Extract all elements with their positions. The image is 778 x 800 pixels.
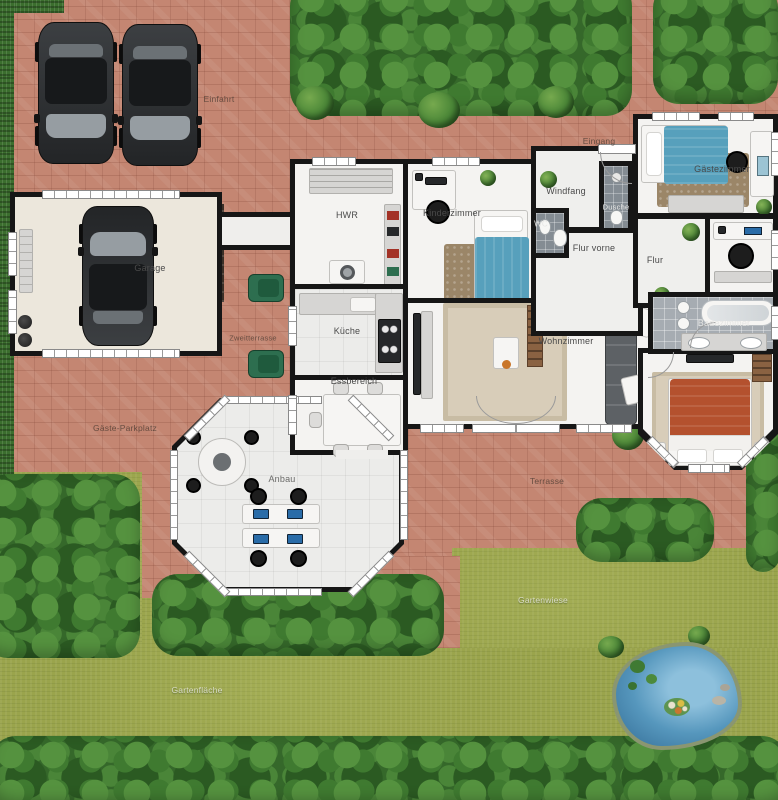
bed-pillow [481,216,523,232]
label-garage: Garage [134,263,165,273]
stored-box [387,249,399,258]
bush [538,86,574,118]
round-table [198,438,246,486]
window [8,290,17,334]
car-mirror [152,247,158,256]
tv-bench [421,311,433,399]
bed-pillow [677,449,707,463]
office-chair [290,550,307,567]
plant [682,223,700,241]
toilet [553,229,567,247]
armchair-seat [258,279,279,297]
kids-bed [474,210,528,302]
window [771,230,778,270]
garage-bin [18,315,32,329]
terrace-door [472,424,560,433]
window [400,450,408,540]
office-chair [290,488,307,505]
wardrobe [668,195,744,213]
car-mirror [34,114,40,123]
garage-bin [18,333,32,347]
lily-pad [630,660,645,673]
label-zweitterrasse: Zweitterrasse [229,334,277,343]
washing-machine [329,260,365,284]
hedge-top-right [653,0,778,104]
window [420,424,464,433]
bush [418,92,460,128]
label-hwr: HWR [336,210,358,220]
desk-phone [718,226,726,234]
window [576,424,632,433]
garden-armchair [248,350,284,378]
stove [378,319,401,363]
car-windshield [90,232,146,256]
garage-car [82,206,154,346]
connecting-corridor [222,212,294,250]
hedge-left-bottom [0,474,140,658]
storage-shelf [309,168,393,194]
room-kinderzimmer [403,159,537,303]
window [226,588,322,596]
label-kinderzimmer: Kinderzimmer [423,208,481,218]
label-flur-vorne: Flur vorne [573,243,616,253]
bed-blanket [664,126,728,184]
plant [480,170,496,186]
car-mirror [196,116,202,125]
chair [244,430,259,445]
window [718,112,754,121]
table-deco [502,360,511,369]
desk [242,504,320,524]
coffee-table [493,337,519,369]
window [226,396,322,404]
monitor [425,177,447,185]
label-gaeste-parkplatz: Gäste-Parkplatz [93,423,157,433]
office-chair [250,488,267,505]
car-roof [45,58,107,104]
window [170,450,178,540]
desk [242,528,320,548]
car-roof [129,60,191,106]
garage-door-bottom [42,349,180,358]
sink [740,337,762,349]
window [771,132,778,176]
stored-box [387,267,399,276]
label-eingang: Eingang [583,136,616,146]
garage-door-top [42,190,180,199]
window [288,395,297,435]
car-rear-glass [49,44,103,57]
desk [713,222,773,240]
label-einfahrt: Einfahrt [204,94,235,104]
chair [186,478,201,493]
window [312,157,356,166]
monitor [253,534,269,544]
sideboard [686,354,734,363]
tv [413,313,421,395]
parked-car [38,22,114,164]
plant [756,199,772,215]
label-wohnzimmer: Wohnzimmer [539,336,594,346]
bed-blanket [670,379,750,437]
monitor [744,227,762,235]
toilet [677,301,690,314]
bush [598,636,624,658]
laptop [757,156,769,176]
guest-bed [641,125,727,183]
window [8,232,17,276]
car-windshield [46,114,106,138]
bidet [677,317,690,330]
lawn-right [452,548,778,648]
car-mirror [78,247,84,256]
label-kueche: Küche [334,326,361,336]
hedge-top-left [0,0,64,13]
hedge-top-main [290,0,632,116]
label-essbereich: Essbereich [331,376,378,386]
anbau-opening [336,450,388,459]
pond-flowers [664,698,690,716]
window [288,306,297,346]
stored-box [387,211,399,220]
window [652,112,700,121]
garage-shelf [19,229,33,293]
car-rear-glass [133,46,187,59]
garden-armchair [248,274,284,302]
bush [296,86,334,120]
label-flur: Flur [647,255,663,265]
garden-pond [612,642,742,750]
room-wc [531,208,569,258]
label-wc: WC [534,220,548,229]
room-essbereich [290,375,408,455]
pond-stone [712,696,726,705]
pond-stone [720,684,730,691]
chair [309,412,322,428]
bed-pillow [646,132,662,176]
label-badezimmer: Badezimmer [698,318,751,328]
armchair-seat [258,355,279,373]
office-chair [728,243,754,269]
storage-rack [384,204,401,286]
office-chair [250,550,267,567]
room-hwr [290,159,408,289]
monitor [287,534,303,544]
floor-plan: Einfahrt Eingang Garage HWR Kinderzimmer… [0,0,778,800]
lily-pad [628,682,637,690]
label-windfang: Windfang [546,186,586,196]
parked-car [122,24,198,166]
stored-box [387,227,399,236]
label-dusche: Dusche [603,203,630,212]
car-windshield [130,116,190,140]
washer-door [340,265,355,280]
double-bed [668,378,752,466]
window [432,157,480,166]
room-office [705,214,778,298]
car-rear-glass [93,311,143,324]
side-table [714,271,772,283]
window [688,464,730,473]
lily-pad [646,674,657,684]
label-terrasse: Terrasse [530,476,564,486]
label-anbau: Anbau [268,474,295,484]
toilet [610,210,623,225]
corner-shelf [752,354,772,382]
hedge-right-row [576,498,714,562]
window [771,306,778,340]
desk-phone [415,173,423,181]
car-mirror [118,116,124,125]
label-gartenwiese: Gartenwiese [518,595,568,605]
table-center [213,453,231,471]
monitor [253,509,269,519]
label-gartenflaeche: Gartenfläche [171,685,222,695]
kitchen-sink [350,297,376,312]
bed-blanket [475,237,529,301]
label-gaestezimmer: Gästezimmer [694,164,750,174]
monitor [287,509,303,519]
